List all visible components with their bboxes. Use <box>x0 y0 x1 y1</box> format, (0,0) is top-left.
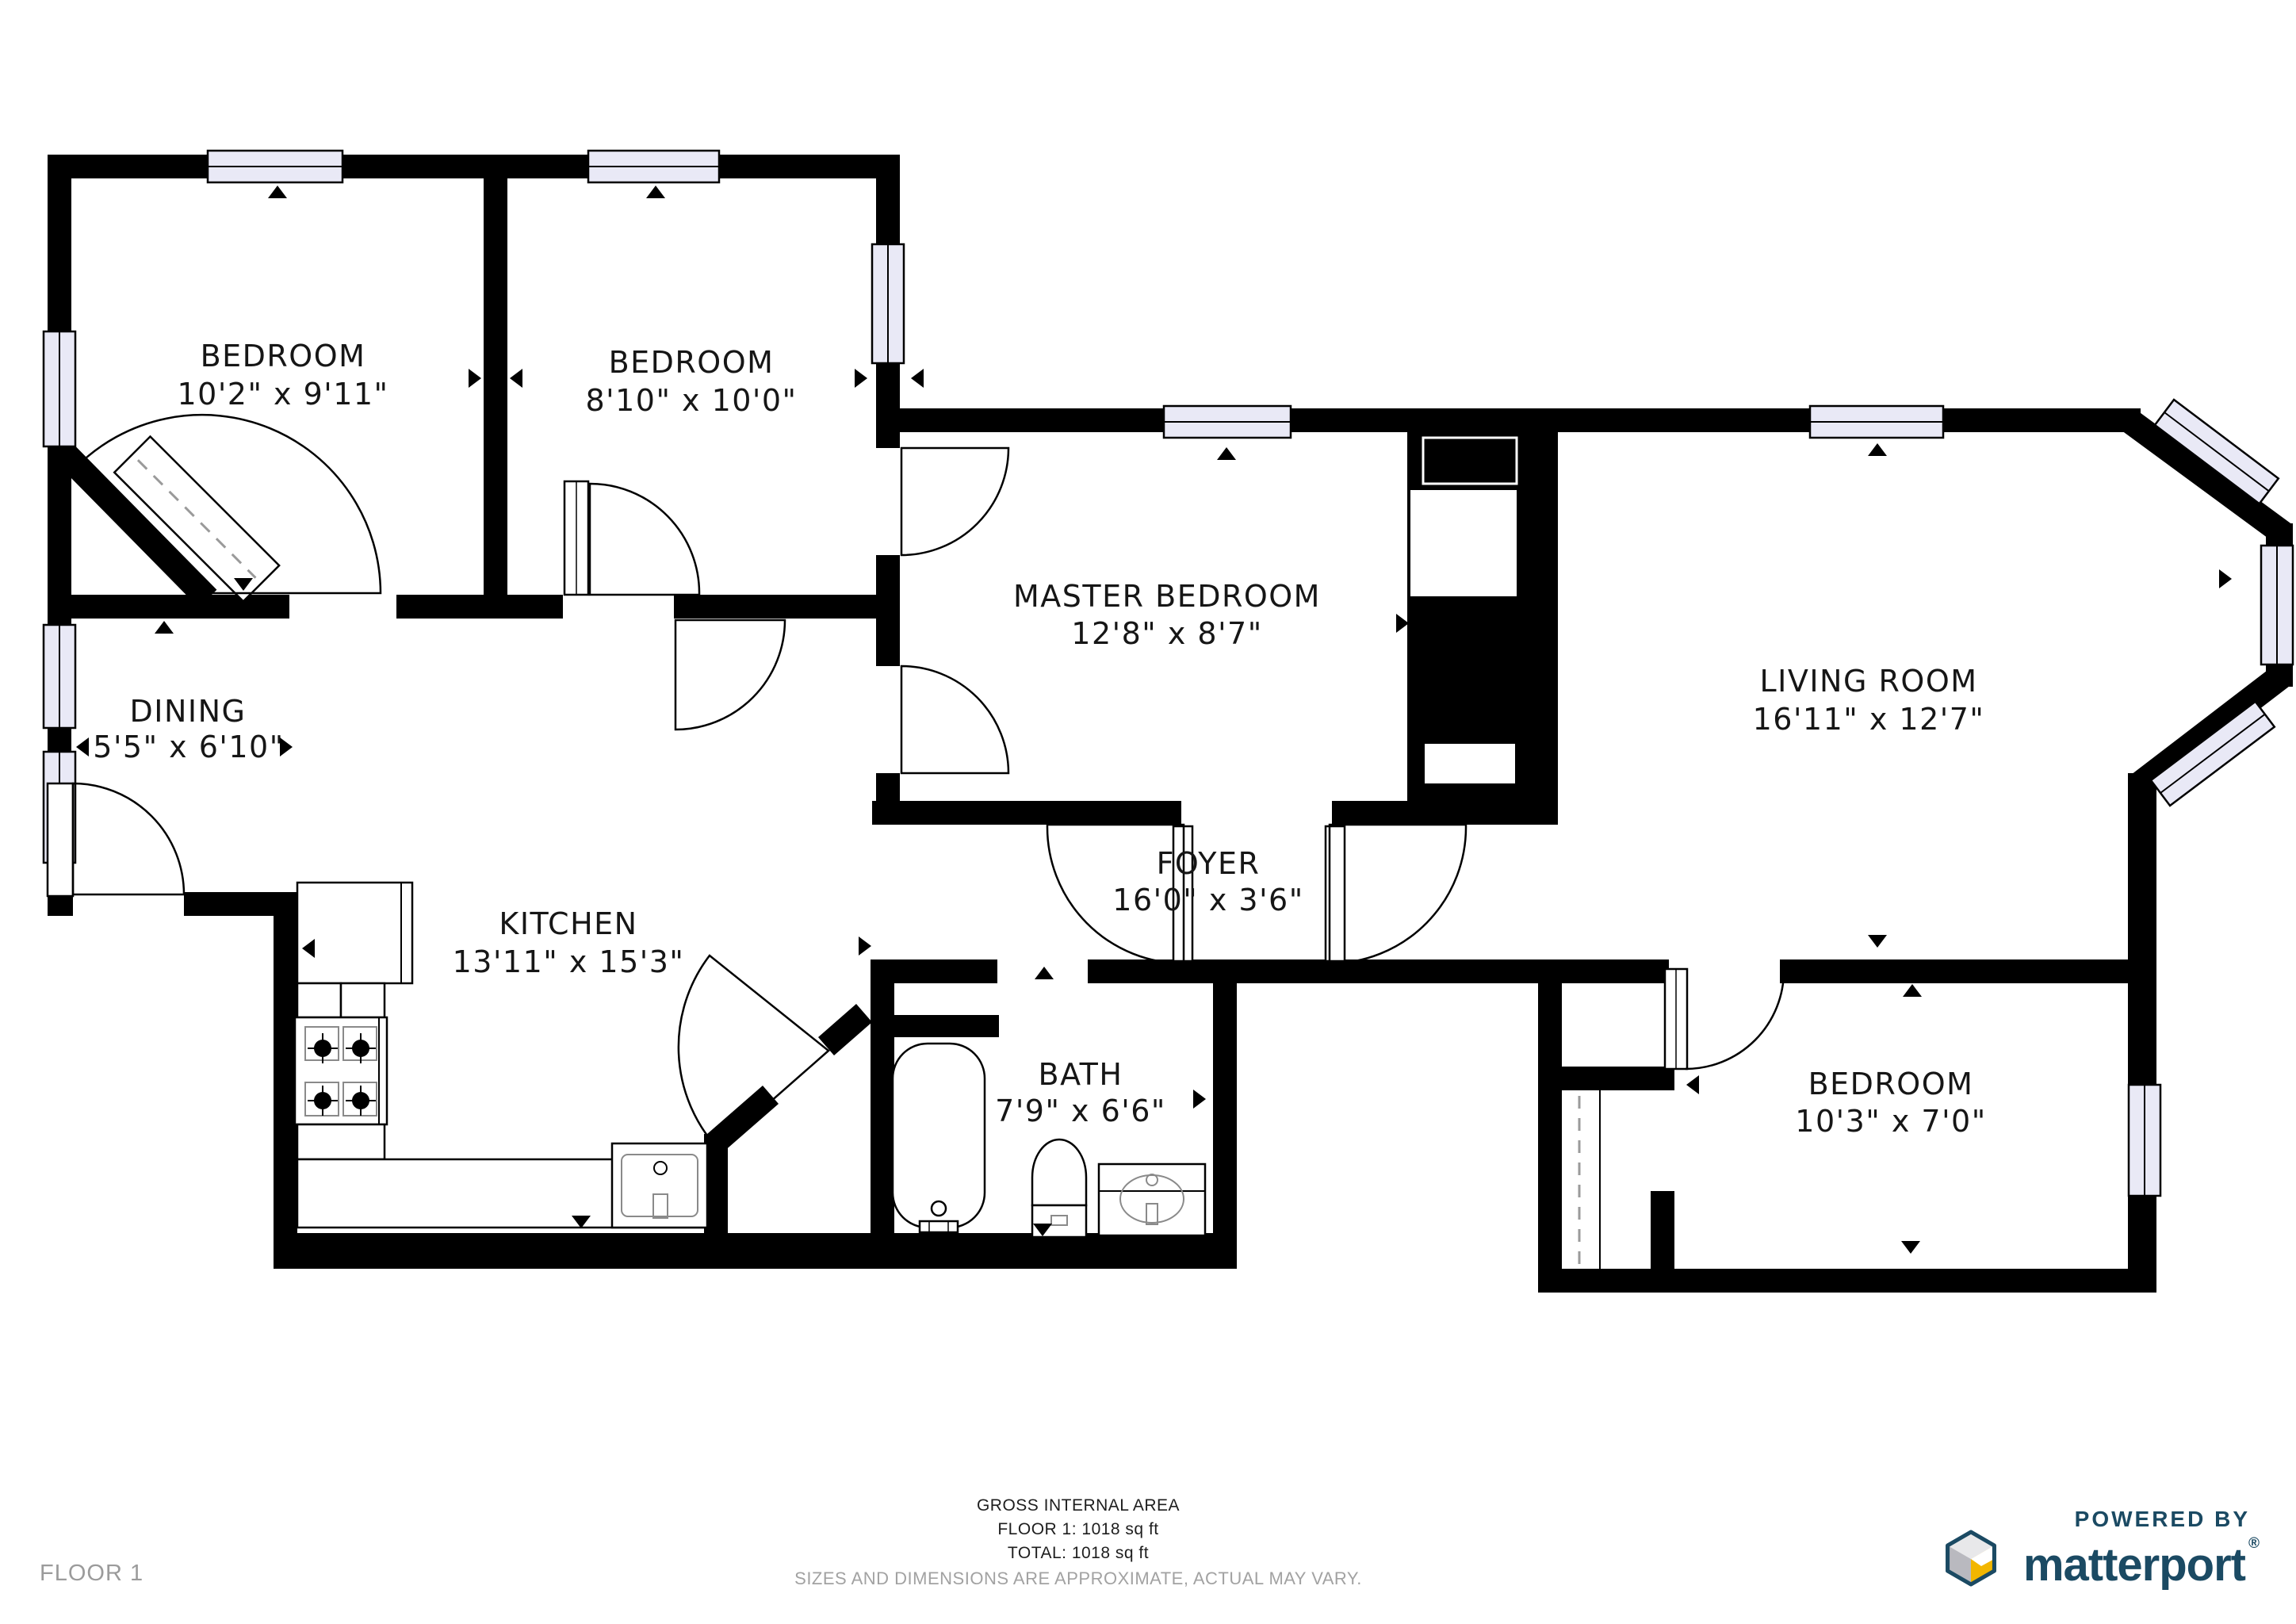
door-arc <box>1686 971 1784 1069</box>
room-dims-bath: 7'9" x 6'6" <box>995 1094 1166 1128</box>
room-label-bedroom-3: BEDROOM <box>1808 1067 1974 1101</box>
counter <box>297 1124 385 1159</box>
door-slab <box>48 783 73 896</box>
toilet <box>1032 1139 1086 1237</box>
door-slab <box>1326 826 1345 961</box>
matterport-wordmark: matterport <box>2023 1539 2246 1591</box>
room-dims-living-room: 16'11" x 12'7" <box>1753 702 1985 737</box>
floor-plan-page: BEDROOM 10'2" x 9'11" BEDROOM 8'10" x 10… <box>0 0 2296 1624</box>
window <box>2129 1085 2160 1196</box>
door-arc <box>901 448 1008 555</box>
window <box>872 244 904 363</box>
room-dims-kitchen: 13'11" x 15'3" <box>453 944 685 979</box>
bath-sink <box>1099 1164 1205 1235</box>
stove-burner <box>314 1040 331 1057</box>
marker-triangle-icon <box>280 737 293 756</box>
marker-triangle-icon <box>911 369 924 388</box>
room-label-master-bedroom: MASTER BEDROOM <box>1013 579 1321 614</box>
room-dims-dining: 5'5" x 6'10" <box>93 730 284 764</box>
matterport-logo: POWERED BY matterport ® <box>1948 1507 2260 1591</box>
marker-triangle-icon <box>1396 614 1409 633</box>
marker-triangle-icon <box>859 936 871 956</box>
room-label-kitchen: KITCHEN <box>499 906 637 941</box>
window <box>1164 406 1291 438</box>
room-label-dining: DINING <box>130 694 247 729</box>
room-label-foyer: FOYER <box>1157 846 1261 881</box>
door-arc <box>73 783 184 894</box>
marker-triangle-icon <box>646 186 665 198</box>
marker-triangle-icon <box>76 737 89 756</box>
marker-triangle-icon <box>1686 1075 1699 1094</box>
marker-triangle-icon <box>855 369 867 388</box>
total-area-value: TOTAL: 1018 sq ft <box>1008 1544 1149 1562</box>
floor-area-value: FLOOR 1: 1018 sq ft <box>997 1520 1158 1538</box>
stove-burner <box>352 1092 369 1109</box>
gross-internal-area-label: GROSS INTERNAL AREA <box>977 1496 1180 1515</box>
marker-triangle-icon <box>1193 1090 1206 1109</box>
window <box>588 151 719 182</box>
marker-triangle-icon <box>510 369 522 388</box>
room-dims-bedroom-3: 10'3" x 7'0" <box>1795 1104 1986 1139</box>
matterport-cube-icon <box>1948 1532 1995 1584</box>
room-dims-master-bedroom: 12'8" x 8'7" <box>1071 616 1262 651</box>
powered-by-label: POWERED BY <box>2075 1507 2250 1531</box>
floor-plan: BEDROOM 10'2" x 9'11" BEDROOM 8'10" x 10… <box>0 0 2296 1624</box>
marker-triangle-icon <box>1901 1241 1920 1254</box>
room-label-bedroom-1: BEDROOM <box>201 339 366 373</box>
floor-label: FLOOR 1 <box>40 1561 143 1586</box>
window <box>208 151 342 182</box>
room-dims-bedroom-1: 10'2" x 9'11" <box>177 377 388 412</box>
marker-triangle-icon <box>469 369 481 388</box>
disclaimer-text: SIZES AND DIMENSIONS ARE APPROXIMATE, AC… <box>794 1568 1362 1588</box>
marker-triangle-icon <box>155 621 174 634</box>
bathtub <box>893 1044 985 1232</box>
window <box>44 331 75 446</box>
room-dims-foyer: 16'0" x 3'6" <box>1112 883 1303 917</box>
marker-triangle-icon <box>1868 935 1887 948</box>
door-arc <box>1330 825 1466 963</box>
window <box>44 625 75 728</box>
room-label-bath: BATH <box>1039 1057 1123 1092</box>
closet-rail <box>1579 1090 1600 1269</box>
marker-triangle-icon <box>268 186 287 198</box>
marker-triangle-icon <box>2219 569 2232 588</box>
marker-triangle-icon <box>1868 443 1887 456</box>
stove-burner <box>314 1092 331 1109</box>
marker-triangle-icon <box>1217 447 1236 460</box>
window <box>1810 406 1943 438</box>
room-dims-bedroom-2: 8'10" x 10'0" <box>585 383 797 418</box>
registered-mark: ® <box>2248 1535 2260 1552</box>
stove <box>295 1017 387 1124</box>
room-label-bedroom-2: BEDROOM <box>609 345 775 380</box>
marker-triangle-icon <box>1903 984 1922 997</box>
door-arc <box>901 666 1008 773</box>
marker-triangle-icon <box>1035 967 1054 979</box>
footer: GROSS INTERNAL AREA FLOOR 1: 1018 sq ft … <box>794 1496 1362 1588</box>
door-arc <box>675 620 785 730</box>
room-label-living-room: LIVING ROOM <box>1759 664 1977 699</box>
door-arc <box>590 484 699 595</box>
window <box>2261 546 2293 665</box>
refrigerator <box>297 883 412 983</box>
kitchen-sink <box>612 1143 707 1228</box>
stove-burner <box>352 1040 369 1057</box>
